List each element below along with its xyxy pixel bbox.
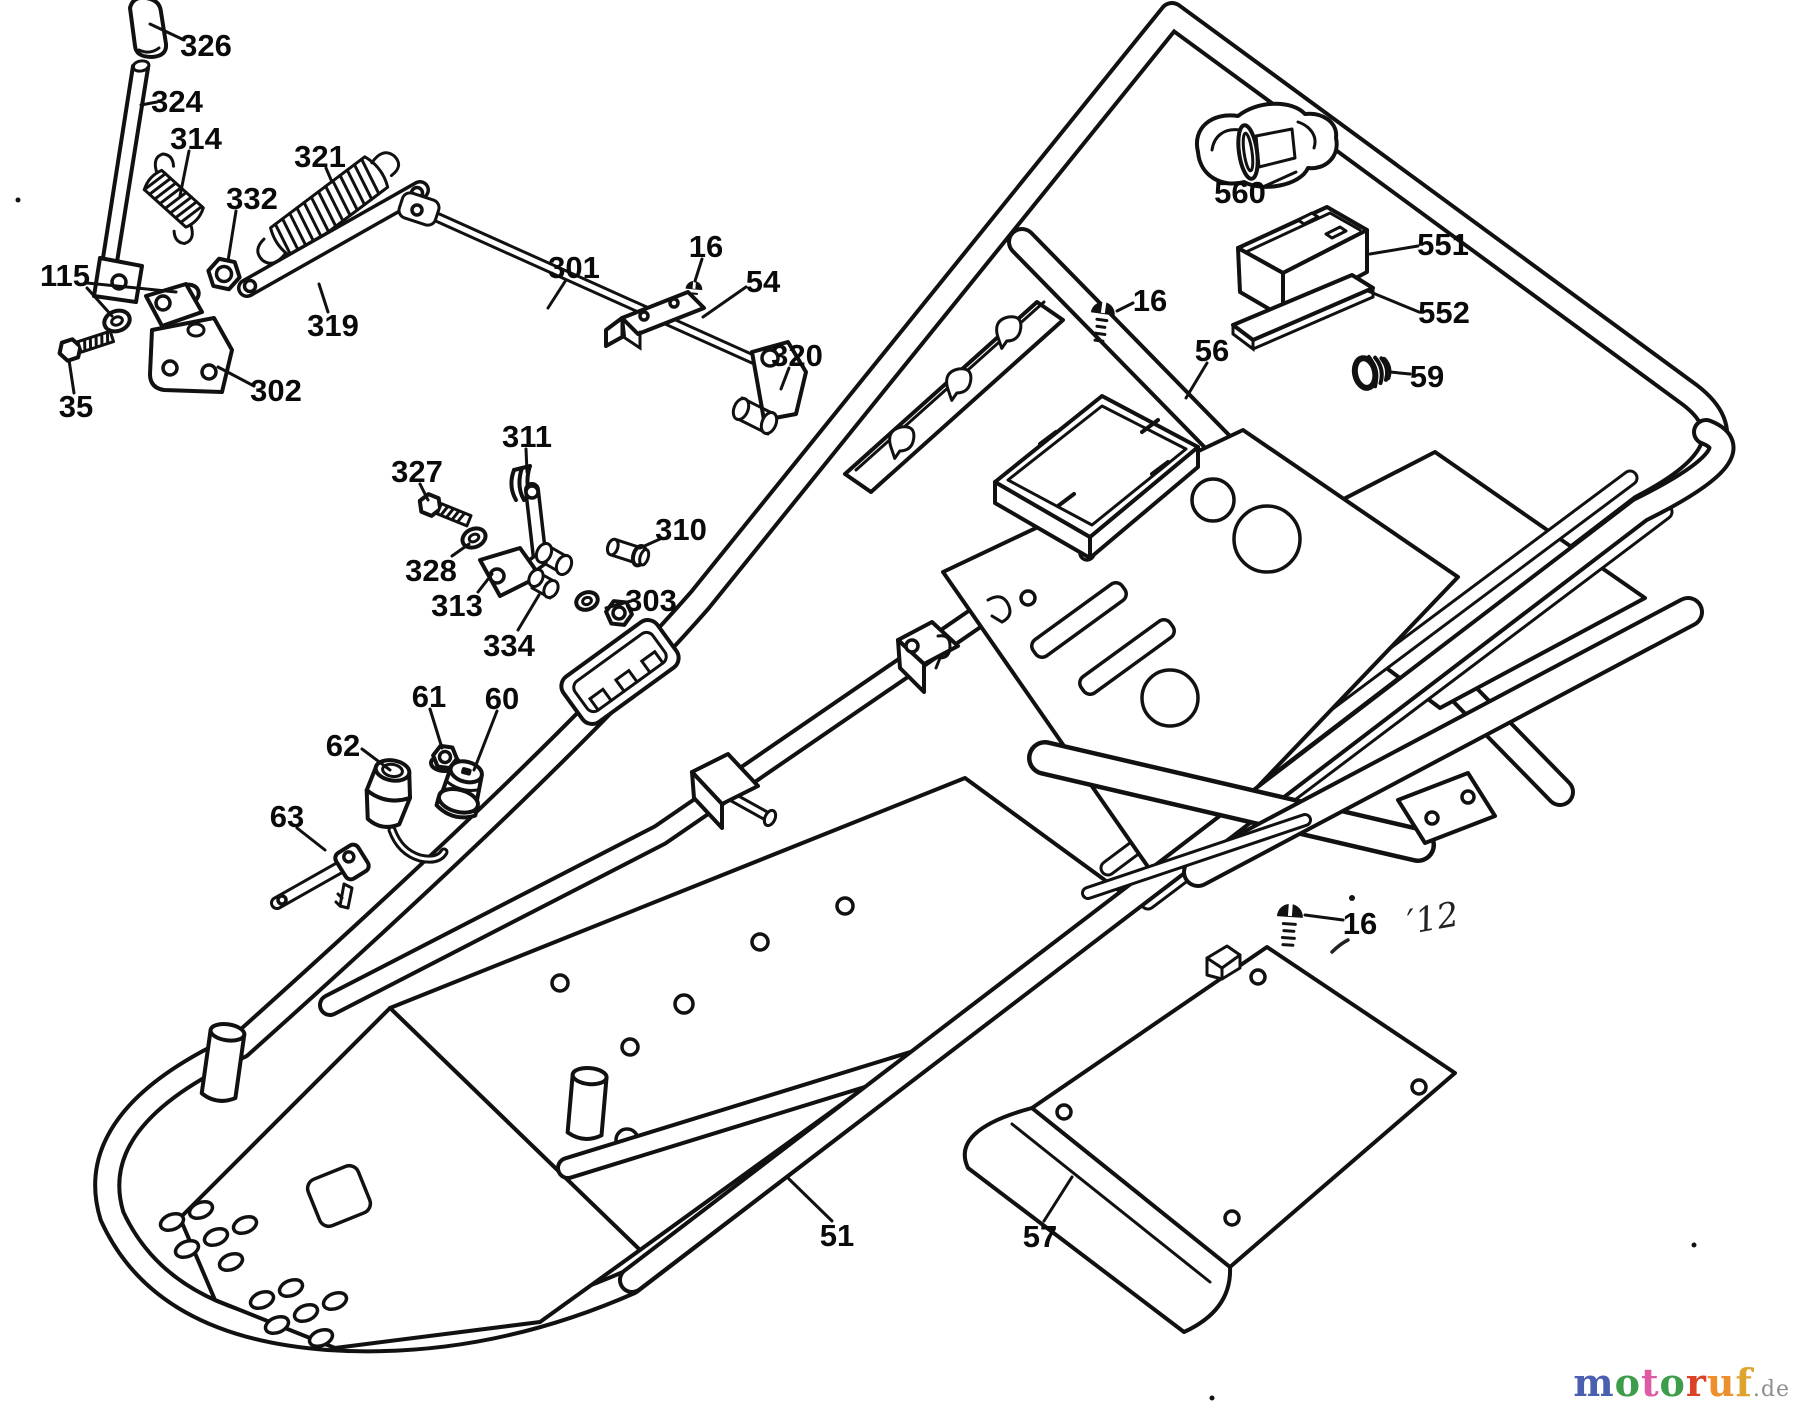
- shifter-gate-plate: [557, 615, 684, 728]
- screw-16-bottom: [1275, 902, 1304, 946]
- part-label-59: 59: [1410, 359, 1444, 394]
- part-label-326: 326: [180, 28, 232, 63]
- plug-59: [1352, 353, 1391, 389]
- part-label-301: 301: [548, 250, 600, 285]
- part-label-35: 35: [59, 389, 93, 424]
- part-label-115: 115: [40, 258, 90, 293]
- part-label-57: 57: [1023, 1219, 1057, 1254]
- leader-line-552: [1368, 291, 1419, 312]
- watermark-letter: u: [1707, 1360, 1736, 1405]
- part-label-313: 313: [431, 588, 483, 623]
- lever-rod-324: [94, 60, 150, 302]
- boot-62: [361, 757, 444, 859]
- part-label-328: 328: [405, 553, 457, 588]
- leader-line-334: [518, 595, 539, 630]
- watermark-letter: r: [1686, 1360, 1707, 1405]
- mount-plate-57: [965, 946, 1455, 1332]
- leader-line-16b: [1117, 303, 1133, 311]
- rod-301: [397, 191, 806, 436]
- part-label-63: 63: [270, 799, 304, 834]
- watermark-letter: t: [1641, 1360, 1660, 1405]
- part-label-54: 54: [746, 264, 781, 299]
- part-label-310: 310: [655, 512, 707, 547]
- leader-line-16c: [1305, 915, 1343, 920]
- leader-line-332: [228, 211, 236, 261]
- part-label-60: 60: [485, 681, 519, 716]
- leader-line-59: [1390, 372, 1410, 374]
- part-label-303: 303: [625, 583, 677, 618]
- parts-diagram-canvas: 3263243143323213191153530230116543203113…: [0, 0, 1800, 1413]
- bolt-35: [57, 327, 115, 362]
- part-label-334: 334: [483, 628, 535, 663]
- leader-line-551: [1370, 246, 1418, 254]
- leader-line-51: [789, 1179, 832, 1221]
- watermark-letter: o: [1615, 1360, 1641, 1405]
- diagram-page: 3263243143323213191153530230116543203113…: [0, 0, 1800, 1413]
- center-post-cylinder: [567, 1067, 607, 1141]
- handwritten-flick: [1332, 940, 1348, 952]
- handwritten-annotation: ′12: [1405, 894, 1462, 942]
- part-label-324: 324: [151, 84, 203, 119]
- watermark-word: motoruf: [1573, 1360, 1753, 1405]
- part-label-551: 551: [1417, 227, 1469, 262]
- part-label-560: 560: [1214, 175, 1266, 210]
- part-label-552: 552: [1418, 295, 1470, 330]
- part-label-332: 332: [226, 181, 278, 216]
- spring-314: [125, 151, 222, 247]
- watermark-suffix: .de: [1753, 1377, 1790, 1402]
- part-label-314: 314: [170, 121, 222, 156]
- part-label-16b: 16: [1133, 283, 1167, 318]
- part-label-16c: 16: [1343, 906, 1377, 941]
- leader-line-54: [703, 287, 746, 317]
- part-label-321: 321: [294, 139, 346, 174]
- bolt-327: [416, 492, 472, 529]
- part-label-302: 302: [250, 373, 302, 408]
- watermark-letter: m: [1573, 1360, 1614, 1405]
- part-label-320: 320: [771, 338, 823, 373]
- pin-310: [605, 536, 651, 568]
- nut-332: [205, 257, 242, 291]
- part-label-16a: 16: [689, 229, 723, 264]
- bushing-334: [526, 567, 561, 600]
- left-post-cylinder: [201, 1022, 245, 1103]
- part-label-51: 51: [820, 1218, 854, 1253]
- leader-line-56: [1186, 363, 1207, 398]
- key-63: [277, 842, 371, 908]
- bellcrank-313: [480, 486, 575, 596]
- part-label-327: 327: [391, 454, 443, 489]
- part-label-56: 56: [1195, 333, 1229, 368]
- leader-line-61: [430, 709, 442, 748]
- part-label-319: 319: [307, 308, 359, 343]
- watermark-letter: f: [1736, 1360, 1753, 1405]
- part-label-61: 61: [412, 679, 446, 714]
- part-label-62: 62: [326, 728, 360, 763]
- watermark-letter: o: [1660, 1360, 1686, 1405]
- watermark-logo: motoruf.de: [1573, 1360, 1790, 1405]
- leader-line-60: [474, 711, 497, 770]
- bracket-302: [146, 284, 232, 392]
- part-label-311: 311: [502, 419, 552, 454]
